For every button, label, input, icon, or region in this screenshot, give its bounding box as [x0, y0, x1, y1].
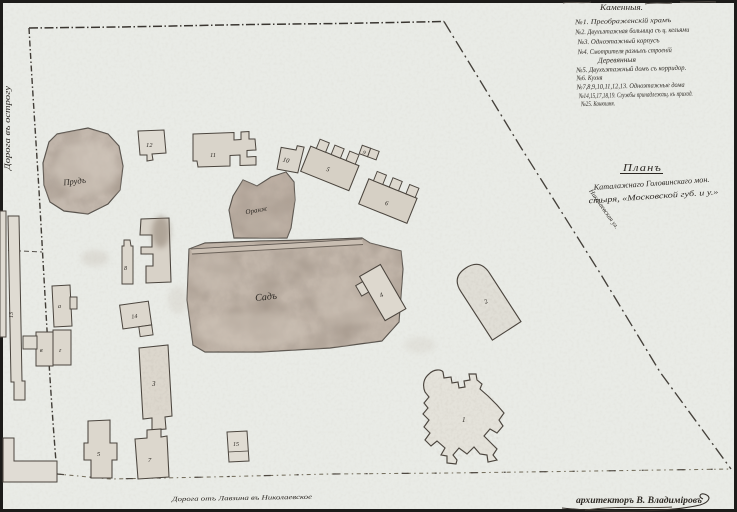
svg-text:13: 13	[9, 312, 15, 318]
svg-text:Дорога въ острогу: Дорога въ острогу	[2, 86, 12, 172]
svg-text:№25. Конюшня.: №25. Конюшня.	[580, 99, 615, 108]
svg-text:1: 1	[462, 416, 466, 424]
svg-text:Планъ: Планъ	[622, 162, 662, 174]
svg-text:11: 11	[210, 152, 216, 159]
svg-text:12: 12	[146, 142, 153, 149]
svg-text:Садъ: Садъ	[255, 291, 278, 304]
svg-text:в: в	[40, 348, 43, 354]
svg-text:15: 15	[233, 442, 239, 448]
svg-text:№6. Кухня: №6. Кухня	[575, 74, 602, 83]
svg-text:архитекторъ В. Владиміровъ: архитекторъ В. Владиміровъ	[576, 495, 702, 505]
svg-text:Каменныя.: Каменныя.	[599, 3, 643, 12]
svg-text:8: 8	[124, 266, 127, 272]
svg-text:а: а	[58, 304, 61, 310]
svg-text:3: 3	[151, 380, 156, 388]
svg-text:Деревянныя: Деревянныя	[597, 55, 637, 65]
svg-text:14: 14	[131, 313, 138, 321]
